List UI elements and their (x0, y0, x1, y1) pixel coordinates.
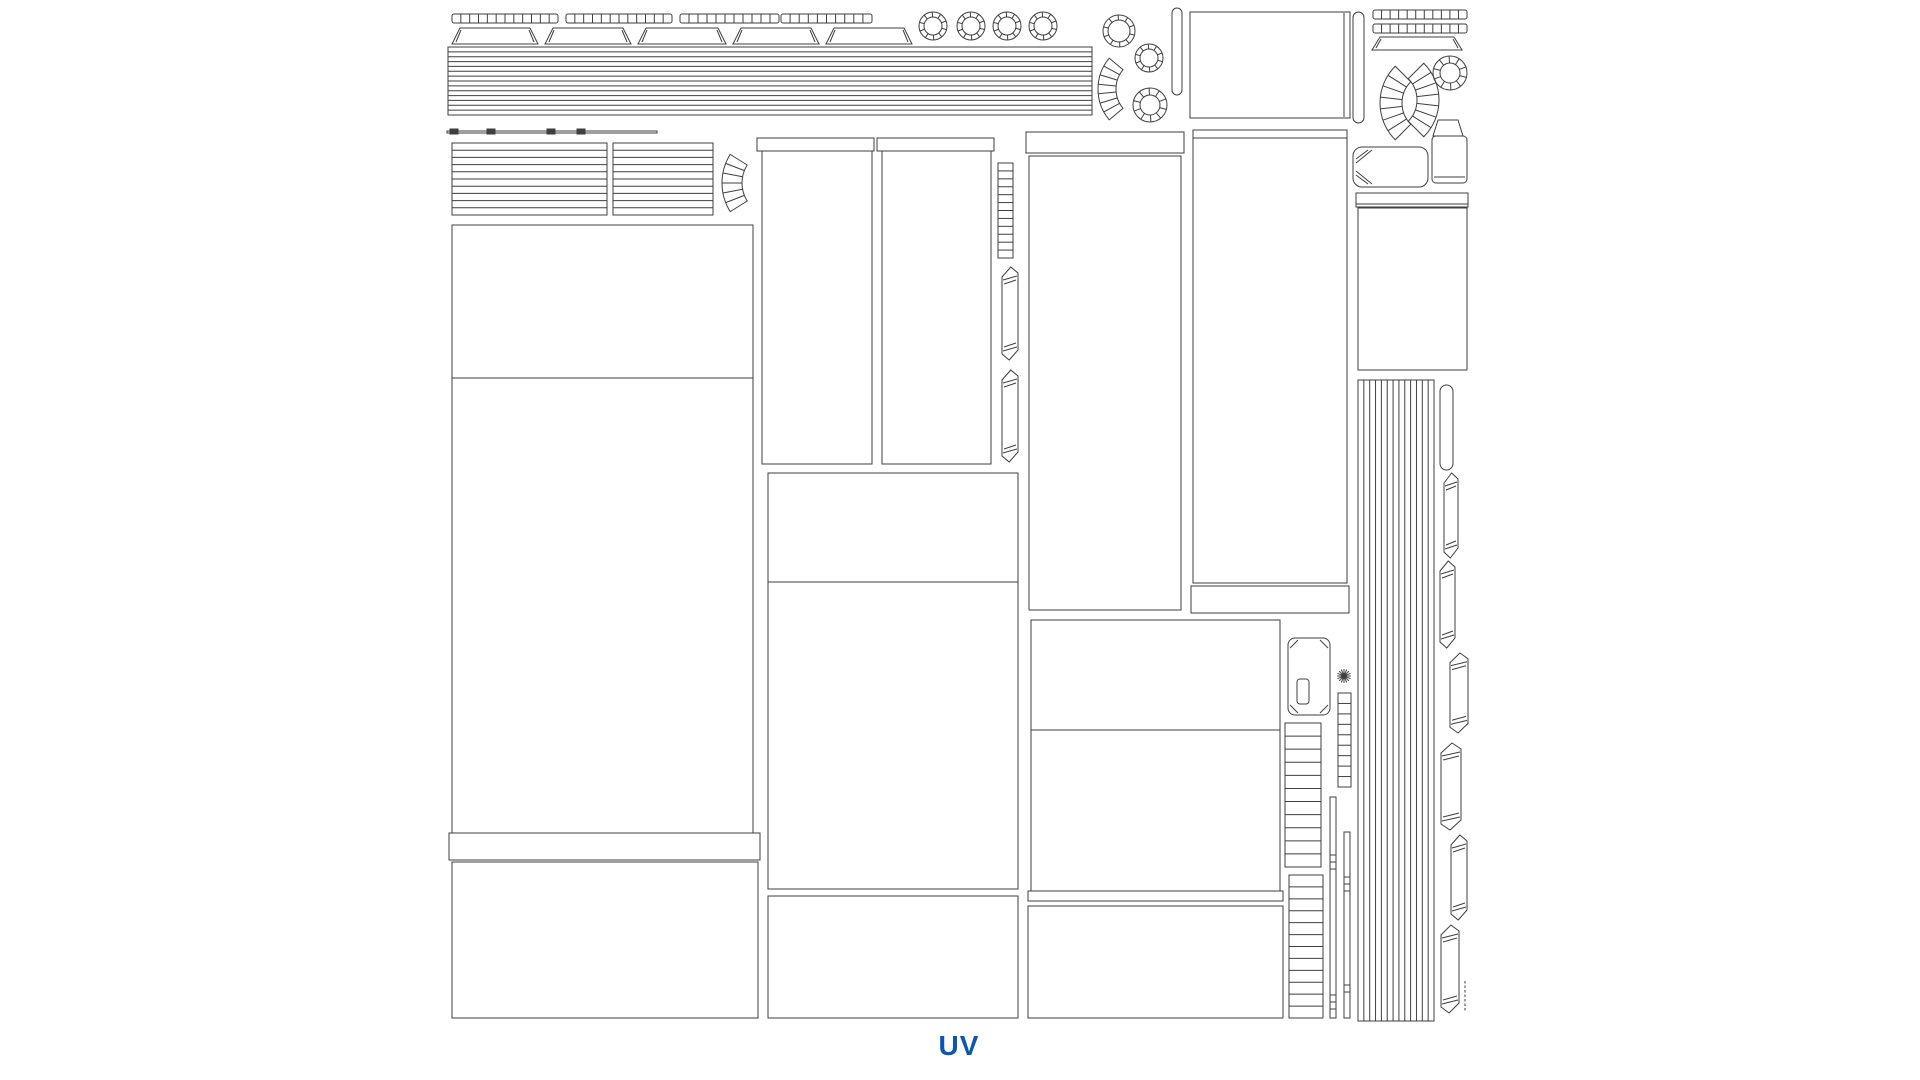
striped-band (448, 47, 1092, 115)
segment-strip (781, 14, 872, 23)
trapezoid-strip (826, 28, 912, 44)
panel-island (452, 862, 758, 1018)
segment-strip (1373, 10, 1467, 19)
trapezoid-strip (733, 28, 819, 44)
panel-island (1028, 906, 1283, 1018)
slat-island (1444, 473, 1458, 558)
arc-fan (1380, 66, 1411, 140)
trapezoid-strip (452, 28, 538, 44)
ring-island (993, 12, 1021, 40)
rounded-island (1353, 147, 1428, 187)
slat-island (1451, 835, 1467, 920)
tick-mark (577, 129, 585, 134)
arc-fan (1408, 63, 1439, 137)
vertical-sliver (1353, 12, 1364, 123)
keycap-island (1288, 638, 1330, 715)
panel-island (1193, 138, 1347, 583)
panel-cap (449, 833, 760, 860)
panel-cap (1356, 193, 1468, 207)
ring-island (1135, 44, 1163, 72)
panel-island (1031, 620, 1280, 891)
uv-label: UV (939, 1030, 980, 1062)
panel-island (452, 225, 753, 833)
panel-cap (877, 138, 994, 151)
ring-island (1433, 56, 1467, 90)
trapezoid-strip (545, 28, 631, 44)
slat-island (1450, 653, 1468, 733)
trapezoid-strip (638, 28, 726, 44)
uv-unwrap-view: UV (0, 0, 1920, 1080)
panel-island (768, 896, 1018, 1018)
ring-island (1103, 15, 1135, 47)
panel-cap (1193, 130, 1347, 138)
panel-island (768, 473, 1018, 889)
tick-mark (547, 129, 555, 134)
panel-cap (1028, 891, 1283, 901)
segment-strip (680, 14, 779, 23)
ring-island (919, 12, 947, 40)
panel-island (1190, 12, 1350, 118)
ladder-strip (998, 163, 1013, 258)
segment-strip (566, 14, 672, 23)
arc-fan (722, 154, 747, 211)
panel-island (882, 151, 991, 464)
uv-map-canvas (0, 0, 1920, 1080)
slider-strip (1330, 797, 1336, 1018)
striped-panel (613, 143, 713, 215)
slat-island (1002, 267, 1018, 360)
vertical-stripe-block (1358, 380, 1434, 1021)
segment-strip (1373, 24, 1467, 33)
slat-island (1440, 561, 1455, 648)
slat-island (1441, 925, 1459, 1013)
slat-island (1441, 743, 1461, 830)
panel-cap (757, 138, 874, 151)
ring-island (1029, 12, 1057, 40)
panel-island (762, 151, 872, 464)
tick-mark (450, 129, 458, 134)
panel-cap (1026, 132, 1184, 153)
keycap-slot (1297, 679, 1309, 704)
segment-strip (452, 14, 558, 23)
ladder-strip (1338, 693, 1351, 787)
striped-panel (452, 143, 607, 215)
ring-island (957, 12, 985, 40)
ring-island (1133, 88, 1167, 122)
panel-island (1358, 208, 1467, 370)
slider-strip (1344, 832, 1350, 1018)
can-top (1433, 120, 1463, 136)
arc-fan (1098, 58, 1123, 120)
slat-island (1440, 385, 1453, 470)
ladder-strip (1285, 723, 1321, 867)
ladder-strip (1289, 875, 1323, 1018)
slat-island (1002, 370, 1018, 462)
panel-island (1029, 156, 1181, 610)
tick-mark (487, 129, 495, 134)
can-body (1432, 136, 1467, 183)
panel-cap (1191, 586, 1349, 613)
star-icon (1337, 669, 1351, 683)
trapezoid-strip (1372, 37, 1462, 50)
vertical-sliver (1172, 8, 1182, 95)
